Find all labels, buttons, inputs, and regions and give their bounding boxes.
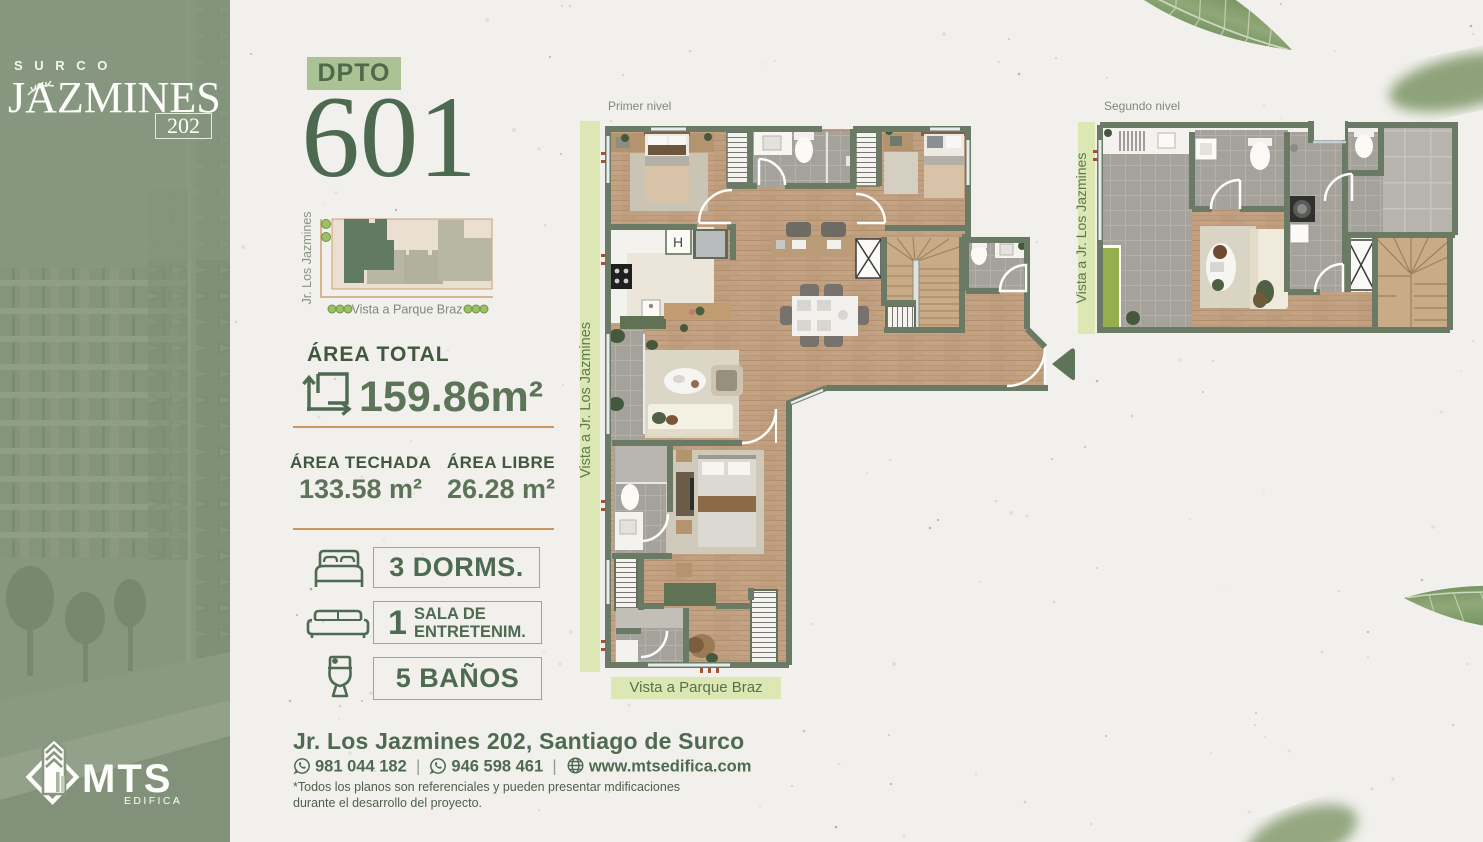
svg-text:Vista a Parque Braz: Vista a Parque Braz: [352, 303, 463, 317]
svg-text:Vista a Jr. Los Jazmines: Vista a Jr. Los Jazmines: [1073, 153, 1089, 304]
svg-text:Vista a Jr. Los Jazmines: Vista a Jr. Los Jazmines: [578, 322, 594, 478]
svg-text:EDIFICA: EDIFICA: [124, 795, 182, 807]
svg-text:Jr. Los Jazmines: Jr. Los Jazmines: [300, 211, 314, 304]
svg-text:H: H: [673, 234, 683, 250]
